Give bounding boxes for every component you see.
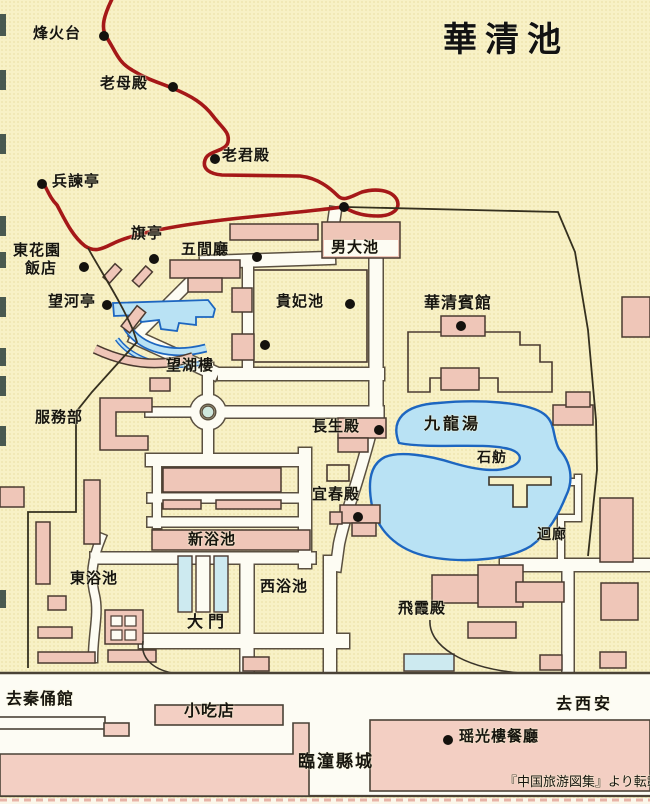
huaqingchi-map: 華清池 烽火台 老母殿 老君殿 兵諫亭 東花園 飯店 旗亭 五間廳 男大池 貴妃… xyxy=(0,0,650,804)
poi-dot-bingjianting xyxy=(37,179,47,189)
label-laomudian: 老母殿 xyxy=(100,77,148,92)
label-qiting: 旗亭 xyxy=(131,227,163,242)
label-bingjianting: 兵諫亭 xyxy=(52,175,100,190)
poi-dot-guifeichi xyxy=(345,299,355,309)
guifeichi-compound xyxy=(253,270,367,362)
poi-dot-yaoguanglou xyxy=(443,735,453,745)
label-yichundian: 宜春殿 xyxy=(312,488,360,503)
roundabout-center xyxy=(202,406,214,418)
mountain-road-red xyxy=(45,0,398,250)
poi-dot-road-end xyxy=(339,202,349,212)
label-lintong: 臨潼縣城 xyxy=(298,753,374,770)
map-title: 華清池 xyxy=(443,24,569,58)
poi-dot-qiting xyxy=(149,254,159,264)
label-fuwubu: 服務部 xyxy=(35,411,83,426)
label-donghuayuan-hotel-line2: 飯店 xyxy=(25,262,57,277)
label-fenghuotai: 烽火台 xyxy=(33,27,81,42)
huaqing-hotel-compound xyxy=(408,332,552,392)
label-wujianting: 五間廳 xyxy=(181,243,229,258)
label-huilang: 迴廊 xyxy=(537,529,567,543)
scan-edge-marks xyxy=(0,14,6,608)
poi-dot-fenghuotai xyxy=(99,31,109,41)
label-changshengdian: 長生殿 xyxy=(312,420,360,435)
wujianting-hall xyxy=(170,260,240,278)
credit-note: 『中国旅游図集』より転載 xyxy=(504,775,650,788)
poi-dot-wujianting xyxy=(252,252,262,262)
poi-dot-huaqing-hotel xyxy=(456,321,466,331)
poi-dot-donghuayuan xyxy=(79,262,89,272)
poi-dot-laomudian xyxy=(168,82,178,92)
poi-dot-changshengdian xyxy=(374,425,384,435)
poi-dot-guifeichi-inner xyxy=(260,340,270,350)
label-feixiadian: 飛霞殿 xyxy=(398,602,446,617)
label-wangheting: 望河亭 xyxy=(48,295,96,310)
roads xyxy=(92,213,650,673)
side-road xyxy=(0,717,105,729)
label-shifang: 石舫 xyxy=(477,452,507,466)
poi-dot-wangheting xyxy=(102,300,112,310)
small-court xyxy=(327,465,349,481)
poi-dot-yichundian xyxy=(353,512,363,522)
fuwubu-building xyxy=(100,398,152,450)
label-damen: 大門 xyxy=(187,615,229,631)
label-qu-qinyongguan: 去秦俑館 xyxy=(6,692,74,708)
label-dongyuchi: 東浴池 xyxy=(70,572,118,587)
label-wanghulou: 望湖樓 xyxy=(166,359,214,374)
map-graphics xyxy=(0,0,650,804)
label-jiulongtang: 九龍湯 xyxy=(424,417,481,433)
label-qu-xian: 去西安 xyxy=(556,697,613,713)
label-donghuayuan-hotel-line1: 東花園 xyxy=(13,244,61,259)
label-huaqing-hotel: 華清賓館 xyxy=(424,296,492,312)
label-xiaochidian: 小吃店 xyxy=(184,704,235,720)
label-guifeichi: 貴妃池 xyxy=(276,295,324,310)
poi-dot-laojundian xyxy=(210,154,220,164)
label-yaoguanglou: 瑶光樓餐廳 xyxy=(459,730,539,745)
label-nandachi: 男大池 xyxy=(331,241,379,256)
label-xinyuchi: 新浴池 xyxy=(188,533,236,548)
label-laojundian: 老君殿 xyxy=(222,149,270,164)
label-xiyuchi: 西浴池 xyxy=(260,580,308,595)
